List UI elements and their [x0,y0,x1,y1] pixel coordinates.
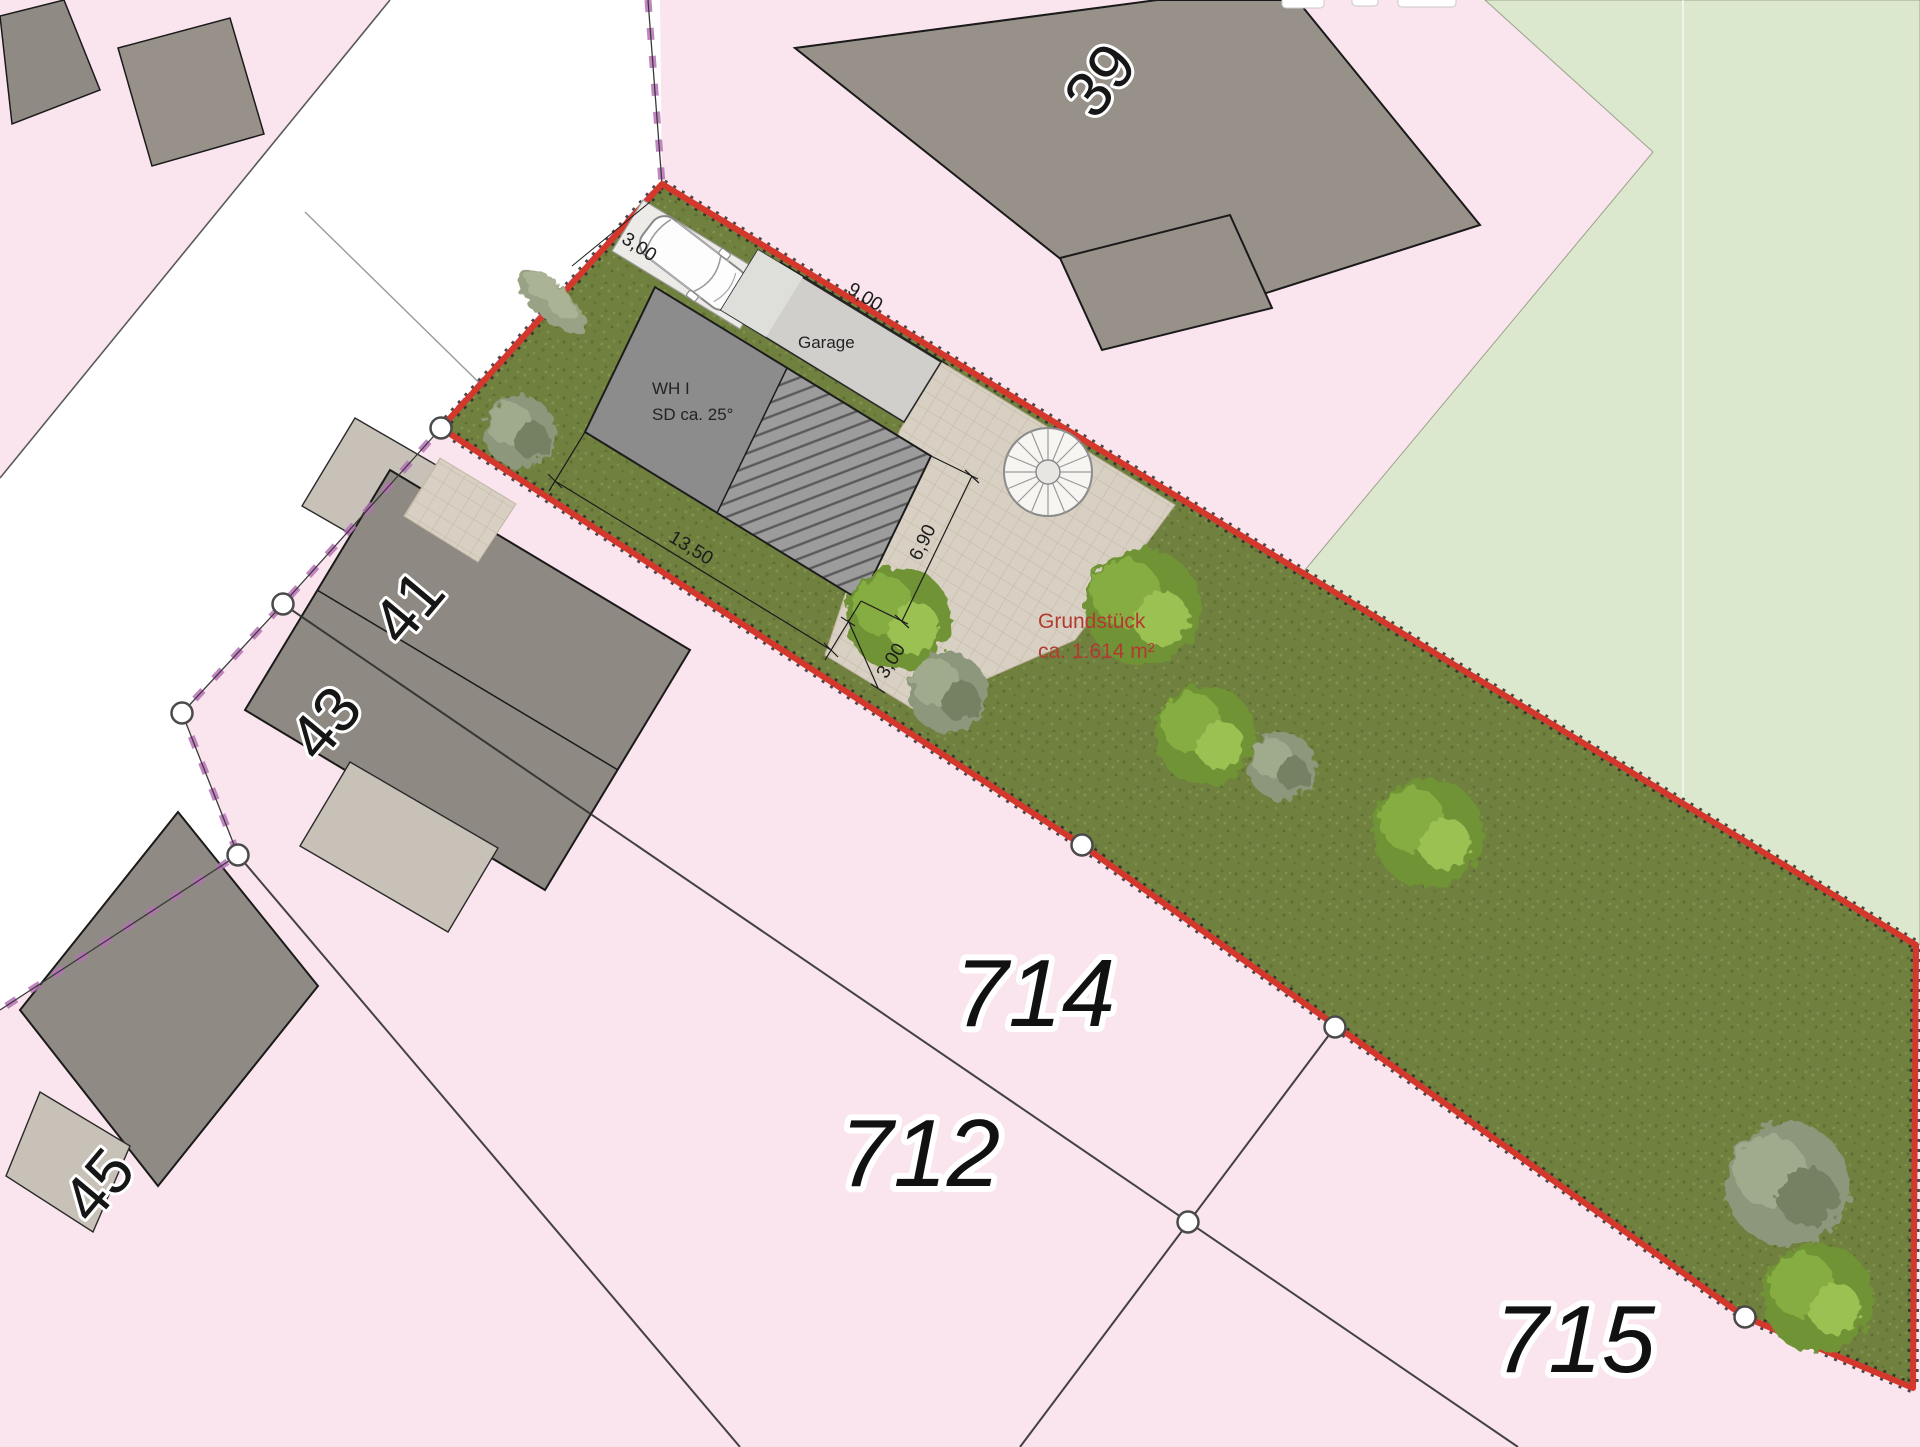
tree [1155,685,1255,785]
gazebo [1004,428,1092,516]
parcel-label-714: 714 [955,940,1115,1047]
house-label-line1: WH I [652,379,690,398]
tree [1373,778,1483,888]
parcel-label-712: 712 [840,1100,1000,1207]
tree [1763,1243,1873,1353]
tree [1726,1123,1850,1247]
shrub [484,396,556,468]
parcel-label-715: 715 [1495,1286,1656,1393]
area-label-line2: ca. 1.614 m² [1038,640,1155,663]
area-label-line1: Grundstück [1038,610,1146,633]
site-plan-svg: 13,50 3,00 6,90 9,00 3,00 WH I SD ca. 25… [0,0,1920,1447]
house-label-line2: SD ca. 25° [652,405,733,424]
site-plan-page: 13,50 3,00 6,90 9,00 3,00 WH I SD ca. 25… [0,0,1920,1447]
garage-label: Garage [798,333,855,352]
tree [908,653,988,733]
tree [1248,732,1316,800]
